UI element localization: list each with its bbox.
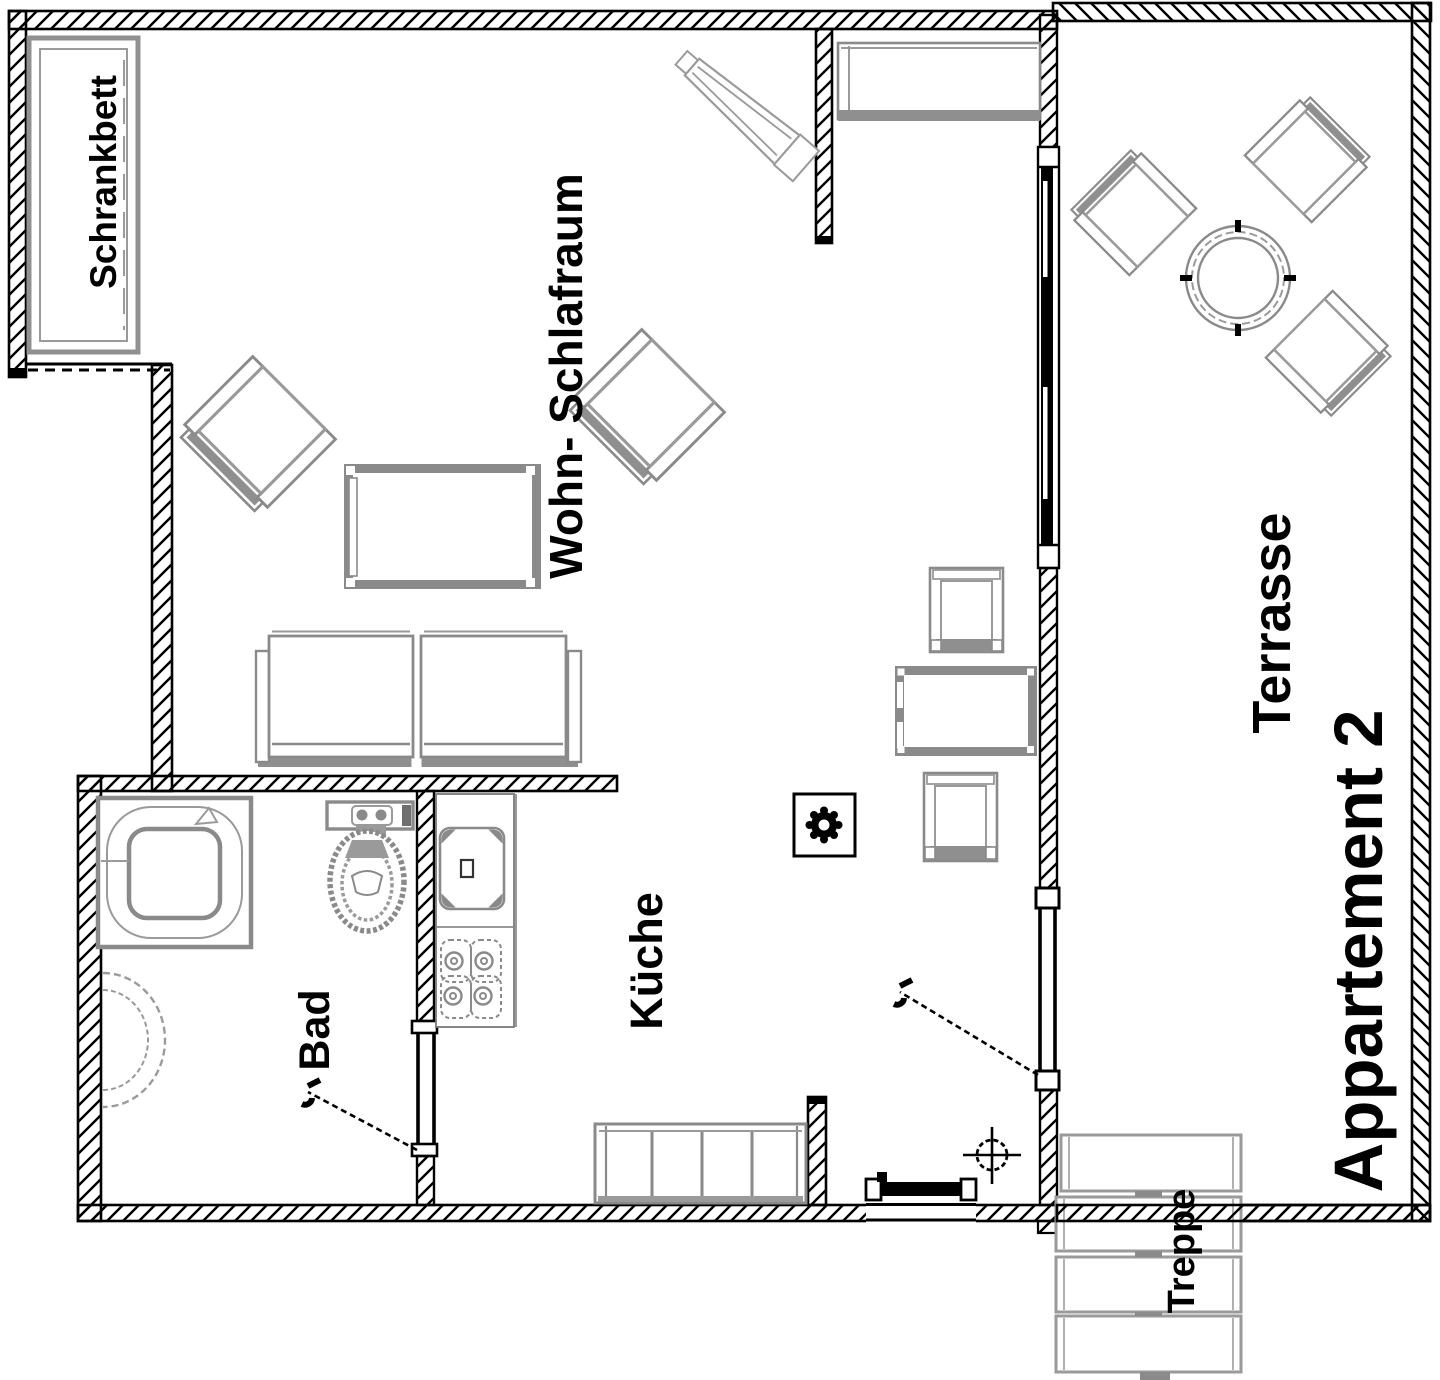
svg-text:Wohn- Schlafraum: Wohn- Schlafraum (540, 173, 592, 579)
svg-text:Treppe: Treppe (1161, 1189, 1203, 1314)
svg-text:Schrankbett: Schrankbett (83, 75, 124, 289)
svg-text:Bad: Bad (291, 989, 339, 1070)
svg-text:Appartement 2: Appartement 2 (1320, 709, 1397, 1192)
svg-text:Terrasse: Terrasse (1242, 512, 1302, 733)
svg-text:Küche: Küche (621, 892, 672, 1030)
